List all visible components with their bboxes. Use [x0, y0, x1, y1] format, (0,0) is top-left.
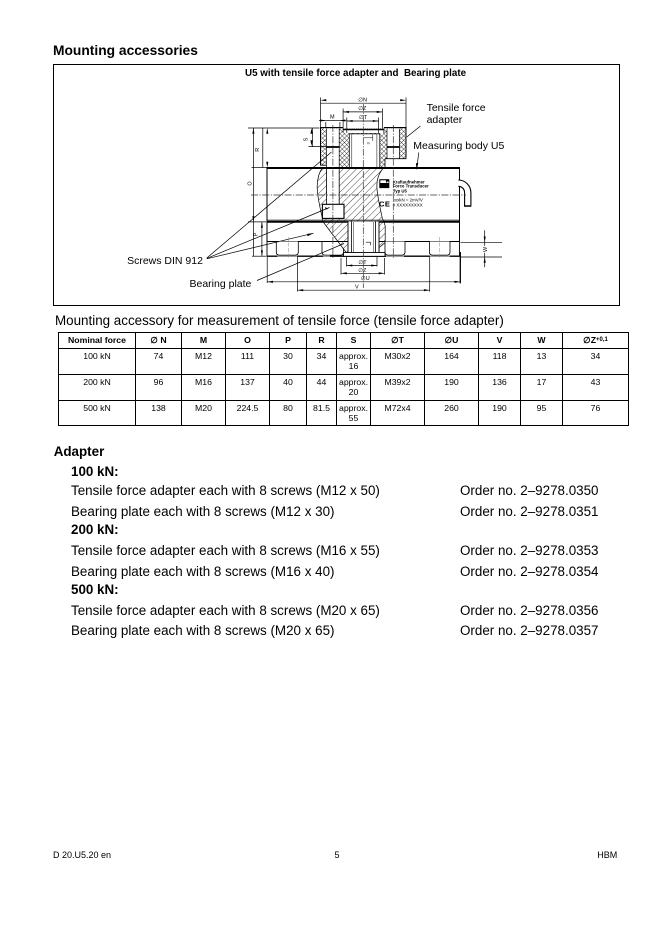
svg-text:∅U: ∅U [361, 275, 370, 282]
svg-text:R: R [255, 148, 261, 152]
svg-text:adapter: adapter [427, 114, 463, 126]
svg-text:Bearing plate: Bearing plate [190, 278, 252, 290]
svg-text:# XXXXXXXXX: # XXXXXXXXX [393, 202, 423, 207]
svg-text:V: V [355, 285, 359, 291]
svg-text:O: O [247, 181, 253, 186]
svg-text:Tensile force: Tensile force [427, 102, 486, 114]
svg-text:∅T: ∅T [358, 259, 367, 266]
svg-text:∅Z: ∅Z [358, 267, 367, 274]
svg-text:Screws DIN 912: Screws DIN 912 [127, 255, 203, 267]
svg-text:∅Z: ∅Z [358, 105, 367, 112]
svg-text:Measuring body U5: Measuring body U5 [413, 140, 504, 152]
svg-text:P: P [254, 232, 260, 236]
svg-text:S: S [304, 137, 310, 141]
svg-text:∅N: ∅N [358, 96, 367, 103]
svg-text:W: W [483, 246, 489, 252]
svg-text:CE: CE [379, 199, 390, 208]
svg-text:Typ U5: Typ U5 [393, 188, 408, 193]
svg-text:M: M [330, 114, 335, 120]
